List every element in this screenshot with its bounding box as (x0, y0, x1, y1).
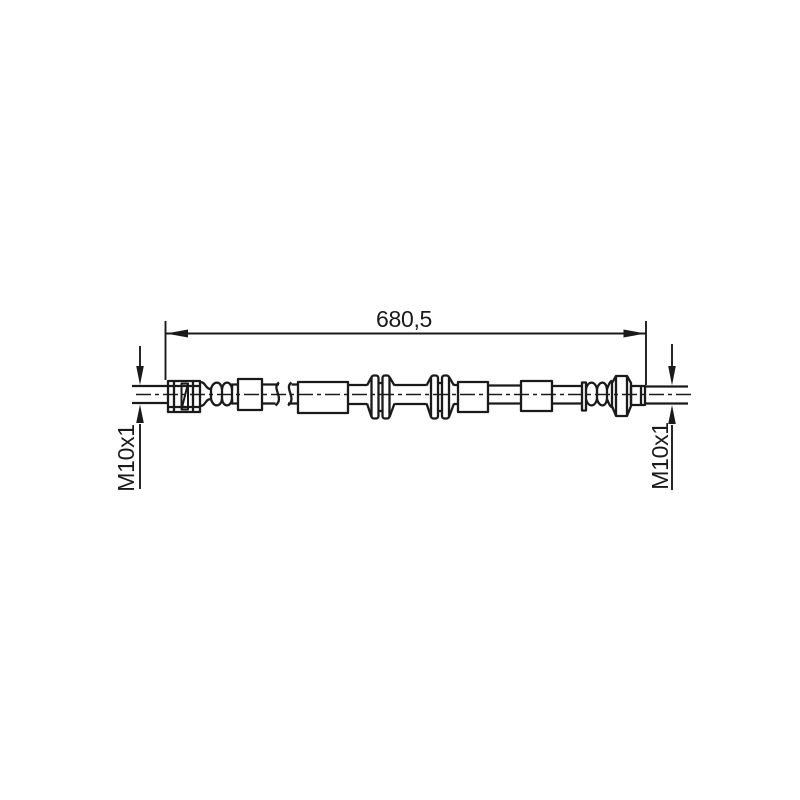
crimp-sleeve-3 (458, 382, 488, 412)
fitting-nut-right (612, 376, 631, 416)
crimp-mark (182, 384, 189, 410)
mounting-grommet-1 (367, 376, 395, 419)
dimension-arrowhead-up (668, 405, 676, 424)
mounting-grommet-2 (427, 376, 455, 419)
threaded-stub-right (631, 386, 645, 405)
brake-hose-technical-drawing: 680,5 M10x1 M10x1 (0, 0, 800, 800)
crimp-collar-right (582, 381, 612, 411)
dimension-arrowhead-right (624, 330, 646, 338)
dimension-arrowhead-up (136, 405, 144, 424)
dimension-arrowhead-down (668, 366, 676, 386)
crimp-sleeve-4 (521, 381, 552, 411)
drawing-svg: 680,5 M10x1 M10x1 (0, 0, 800, 800)
dimension-arrowhead-left (166, 330, 188, 338)
thread-size-label-right: M10x1 (647, 422, 673, 490)
thread-size-label-left: M10x1 (113, 424, 139, 492)
length-dimension-label: 680,5 (376, 306, 432, 332)
crimp-sleeve-2 (298, 382, 348, 413)
fitting-nut-left (168, 381, 200, 412)
dimension-arrowhead-down (136, 366, 144, 385)
